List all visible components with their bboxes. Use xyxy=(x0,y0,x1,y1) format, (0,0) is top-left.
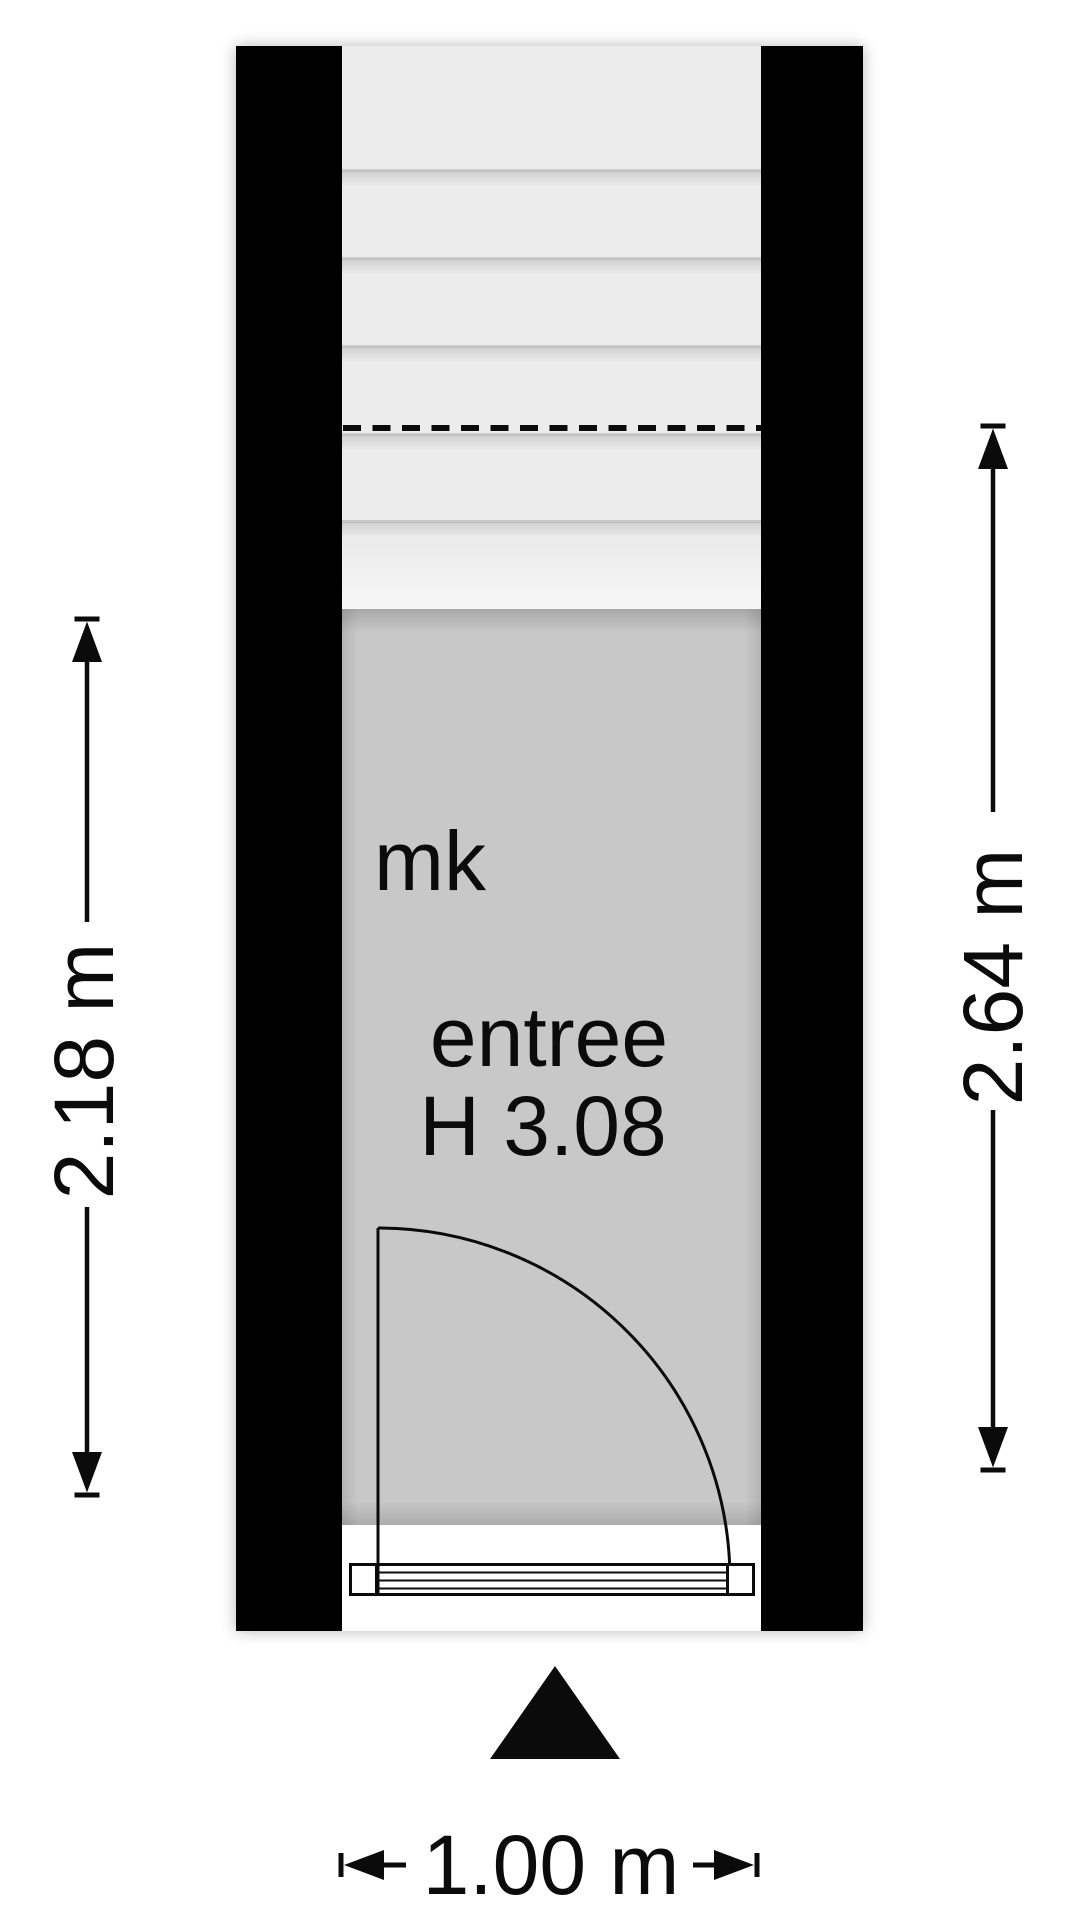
svg-text:entree: entree xyxy=(430,990,668,1084)
svg-text:mk: mk xyxy=(374,814,487,908)
svg-text:1.00 m: 1.00 m xyxy=(423,1818,680,1912)
svg-text:H 3.08: H 3.08 xyxy=(419,1079,667,1173)
svg-text:2.18 m: 2.18 m xyxy=(37,943,131,1200)
svg-text:2.64 m: 2.64 m xyxy=(946,849,1040,1106)
